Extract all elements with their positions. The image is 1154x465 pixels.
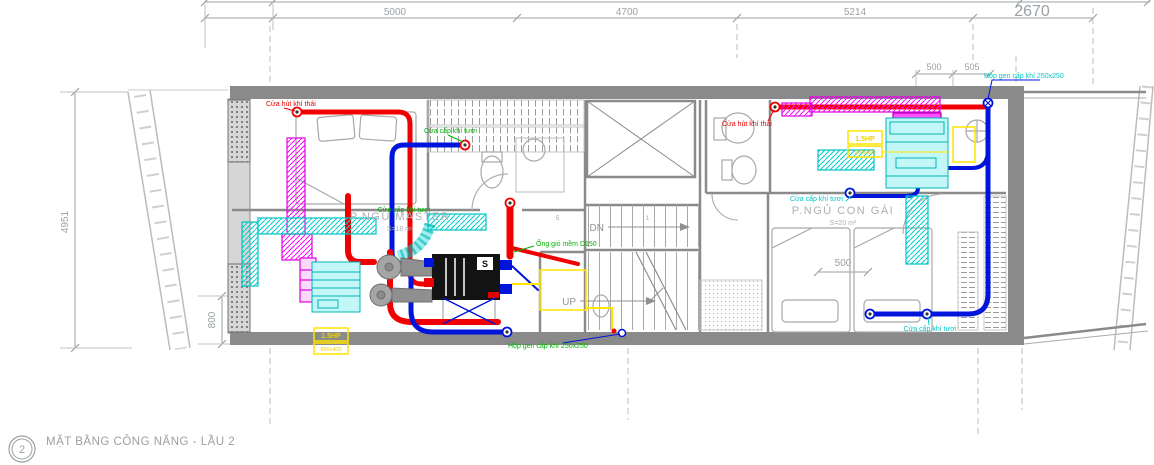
title-ref-number: 2	[19, 444, 25, 456]
small-red-dot	[612, 329, 617, 334]
ahu-port-blue-left	[424, 258, 434, 267]
stair-up-label: UP	[562, 297, 576, 308]
blue-branch-erv	[948, 150, 988, 168]
elevator-shaft	[587, 101, 695, 177]
label-fresh-air-master: Cửa cấp khí tươi	[378, 205, 431, 214]
label-supply-shaft-top: Hộp gen cấp khí 250x250	[984, 71, 1064, 80]
dim-left-4951: 4951	[60, 210, 71, 233]
dim-top-1: 5000	[384, 7, 407, 18]
label-exhaust-door-right: Cửa hút khí thải	[722, 120, 772, 128]
dim-interior-500: 500	[835, 258, 852, 269]
small-blue-ring	[619, 330, 626, 337]
label-fresh-air-left: Cửa cấp khí tươi	[424, 126, 477, 135]
dim-small-505: 505	[964, 62, 979, 72]
ahu-mark: S	[482, 259, 488, 269]
red-pipe-left-top	[302, 112, 432, 284]
drawing-title: MẶT BẰNG CÔNG NĂNG - LẦU 2	[46, 435, 235, 448]
label-exhaust-door-left: Cửa hút khí thải	[266, 100, 316, 108]
dim-ticks	[201, 0, 1152, 22]
dim-top-4: 2670	[1014, 3, 1050, 20]
label-flex-duct: Ống gió mềm D150	[536, 238, 597, 248]
tag-right-line2: 600x400	[854, 150, 875, 156]
stair-down-label: DN	[590, 223, 604, 234]
textured-floor-patch	[700, 280, 762, 330]
floor-plan-drawing: 5000 4700 5214 2670 500 505 4951 800 500…	[0, 0, 1154, 465]
tag-left-line1: 1.5HP	[321, 333, 341, 340]
dim-top-2: 4700	[616, 7, 639, 18]
blue-branch-diagonal	[512, 266, 538, 290]
room-area-master: S=18 m²	[387, 226, 414, 233]
label-supply-shaft-bottom: Hộp gen cấp khí 250x250	[508, 341, 588, 350]
tag-right-line1: 1.5HP	[855, 136, 875, 143]
cyan-fan-coil-left	[312, 262, 360, 312]
label-fresh-air-girl: Cửa cấp khí tươi	[790, 194, 843, 203]
girl-bed-1	[772, 228, 850, 332]
label-fresh-air-bottom-right: Cửa cấp khí tươi	[904, 324, 957, 333]
ahu-port-blue-right-2	[500, 284, 512, 294]
blue-x-marker	[984, 99, 993, 108]
dim-left-800: 800	[207, 311, 218, 328]
tag-left-line2: 600x400	[320, 347, 341, 353]
ahu-unit	[424, 254, 512, 300]
room-name-girl: P.NGỦ CON GÁI	[792, 204, 894, 217]
master-bed	[296, 112, 416, 204]
title-block: 2 MẶT BẰNG CÔNG NĂNG - LẦU 2	[9, 435, 235, 462]
cyan-erv-unit-right	[886, 118, 948, 188]
ahu-port-blue-right-1	[500, 260, 512, 270]
ahu-port-red-left	[424, 278, 434, 287]
cad-floor-plan-viewport: 5000 4700 5214 2670 500 505 4951 800 500…	[0, 0, 1154, 465]
dim-top-3: 5214	[844, 7, 867, 18]
floor-drain-fan	[966, 120, 988, 142]
room-area-girl: S=20 m²	[830, 220, 857, 227]
stair-step-number-5: 5	[556, 216, 560, 222]
drain-highlight-box	[953, 127, 975, 162]
wardrobe-hatch-top-1	[428, 100, 584, 125]
red-branch-diagonal	[512, 248, 578, 264]
dim-small-500: 500	[926, 62, 941, 72]
door-swings	[472, 174, 943, 234]
